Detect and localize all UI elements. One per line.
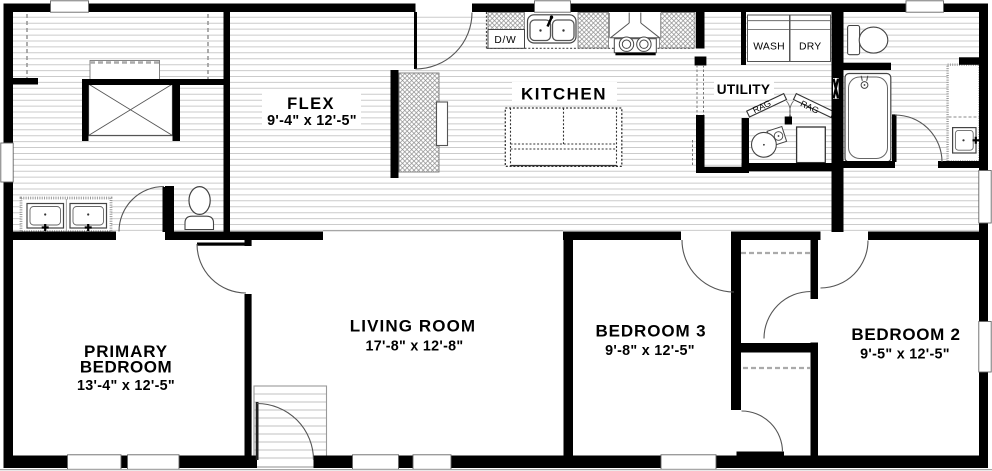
- svg-text:LIVING ROOM: LIVING ROOM: [350, 317, 476, 336]
- svg-text:BEDROOM 2: BEDROOM 2: [851, 325, 960, 344]
- svg-text:13'-4" x 12'-5": 13'-4" x 12'-5": [77, 378, 175, 394]
- svg-text:D/W: D/W: [494, 35, 516, 46]
- svg-text:BEDROOM 3: BEDROOM 3: [595, 322, 706, 341]
- svg-text:17'-8" x 12'-8": 17'-8" x 12'-8": [366, 339, 464, 355]
- svg-text:DRY: DRY: [799, 42, 821, 53]
- svg-text:9'-5" x 12'-5": 9'-5" x 12'-5": [860, 347, 950, 363]
- svg-text:UTILITY: UTILITY: [717, 82, 770, 97]
- svg-text:BEDROOM: BEDROOM: [80, 358, 172, 377]
- svg-text:WASH: WASH: [753, 42, 785, 53]
- svg-text:9'-8" x 12'-5": 9'-8" x 12'-5": [605, 343, 695, 359]
- svg-text:FLEX: FLEX: [287, 95, 335, 113]
- svg-text:KITCHEN: KITCHEN: [521, 84, 607, 103]
- svg-text:9'-4" x 12'-5": 9'-4" x 12'-5": [267, 113, 357, 129]
